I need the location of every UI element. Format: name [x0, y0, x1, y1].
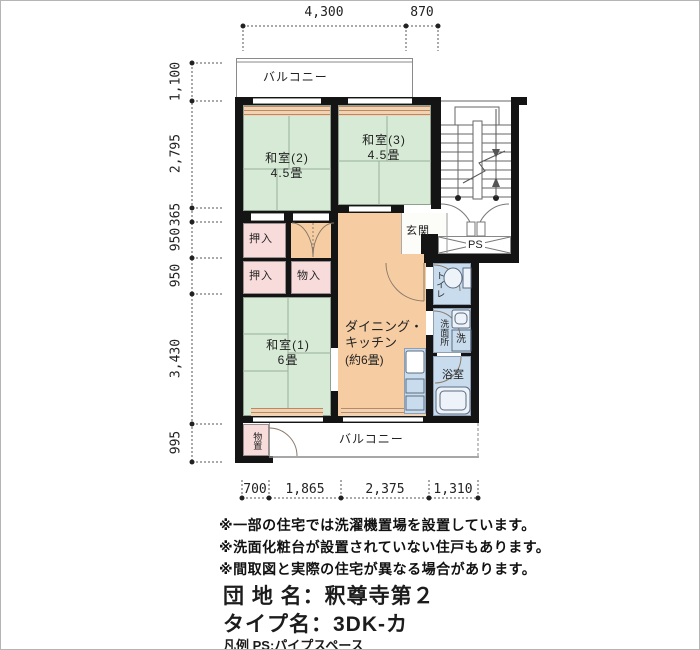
- dim-left-3430: 3,430: [169, 324, 184, 394]
- fusuma-opening: [293, 213, 329, 221]
- footnote-line: ※洗面化粧台が設置されていない住戸もあります。: [219, 536, 550, 558]
- wall: [471, 254, 479, 423]
- dim-left-2795: 2,795: [169, 119, 184, 189]
- hall-closet-front: [291, 223, 331, 258]
- wall: [511, 97, 519, 256]
- footnote-line: ※一部の住宅では洗濯機置場を設置しています。: [219, 514, 550, 536]
- fusuma-opening: [251, 213, 284, 221]
- wall: [243, 294, 331, 297]
- toilet-label: トイレ: [434, 265, 445, 303]
- balcony-top-label: バルコニー: [263, 70, 328, 85]
- wall: [433, 305, 471, 308]
- dim-bottom-2375: 2,375: [350, 482, 420, 497]
- floorplan-page: バルコニー 和室(2) 4.5畳 和室(3) 4.5畳 和室(1) 6畳 ダイニ…: [0, 0, 700, 650]
- estate-name: 団 地 名：釈尊寺第２: [223, 580, 435, 610]
- dim-top-4300: 4,300: [289, 5, 359, 20]
- dim-left-995: 995: [169, 408, 184, 478]
- wall: [511, 97, 527, 105]
- door-opening: [437, 353, 461, 356]
- window-opening: [348, 98, 412, 104]
- washitsu2-label: 和室(2) 4.5畳: [252, 151, 322, 181]
- monoire-label: 物入: [297, 270, 321, 284]
- window-opening: [253, 417, 323, 422]
- ps-legend: 凡例 PS:パイプスペース: [223, 635, 364, 650]
- washitsu1-label: 和室(1) 6畳: [253, 338, 323, 368]
- dim-bottom-1865: 1,865: [270, 482, 340, 497]
- wall: [286, 223, 291, 294]
- window-opening: [253, 98, 321, 104]
- genkan-label: 玄関: [406, 225, 430, 239]
- bath-label: 浴室: [442, 369, 464, 383]
- wall: [235, 456, 273, 463]
- monooki-label: 物置: [251, 429, 262, 453]
- room-bath: [433, 356, 471, 416]
- staircase: [441, 101, 511, 201]
- dim-left-950b: 950: [169, 241, 184, 311]
- footnote-line: ※間取図と実際の住宅が異なる場合があります。: [219, 558, 550, 580]
- stair-direction-arrow: [463, 109, 505, 197]
- washitsu3-label: 和室(3) 4.5畳: [349, 133, 419, 163]
- window-band: [339, 106, 430, 116]
- type-name: タイプ名：3DK-カ: [223, 608, 408, 638]
- footnotes: ※一部の住宅では洗濯機置場を設置しています。 ※洗面化粧台が設置されていない住戸…: [219, 514, 550, 580]
- dk-label: ダイニング・ キッチン (約6畳): [345, 319, 425, 368]
- ps-label: PS: [466, 239, 485, 251]
- dim-bottom-1310: 1,310: [418, 482, 488, 497]
- entrance-door-arcs: [441, 204, 509, 236]
- wall: [235, 97, 243, 463]
- dim-left-1100: 1,100: [169, 47, 184, 117]
- oshiire-upper-label: 押入: [249, 233, 273, 247]
- door-opening: [426, 311, 433, 335]
- fusuma-opening: [349, 206, 391, 212]
- door-opening: [331, 348, 338, 391]
- senmenjo-label: 洗面所: [438, 313, 449, 351]
- dk-passage: [401, 254, 424, 263]
- hallway: [338, 213, 401, 263]
- window-band: [251, 408, 323, 416]
- laundry-label: 洗: [456, 334, 466, 347]
- dim-top-870: 870: [397, 5, 447, 20]
- balcony-bottom-label: バルコニー: [339, 432, 404, 447]
- window-opening: [343, 417, 423, 422]
- oshiire-lower-label: 押入: [249, 270, 273, 284]
- door-opening: [426, 267, 433, 289]
- window-band: [244, 106, 330, 116]
- wall: [431, 97, 441, 209]
